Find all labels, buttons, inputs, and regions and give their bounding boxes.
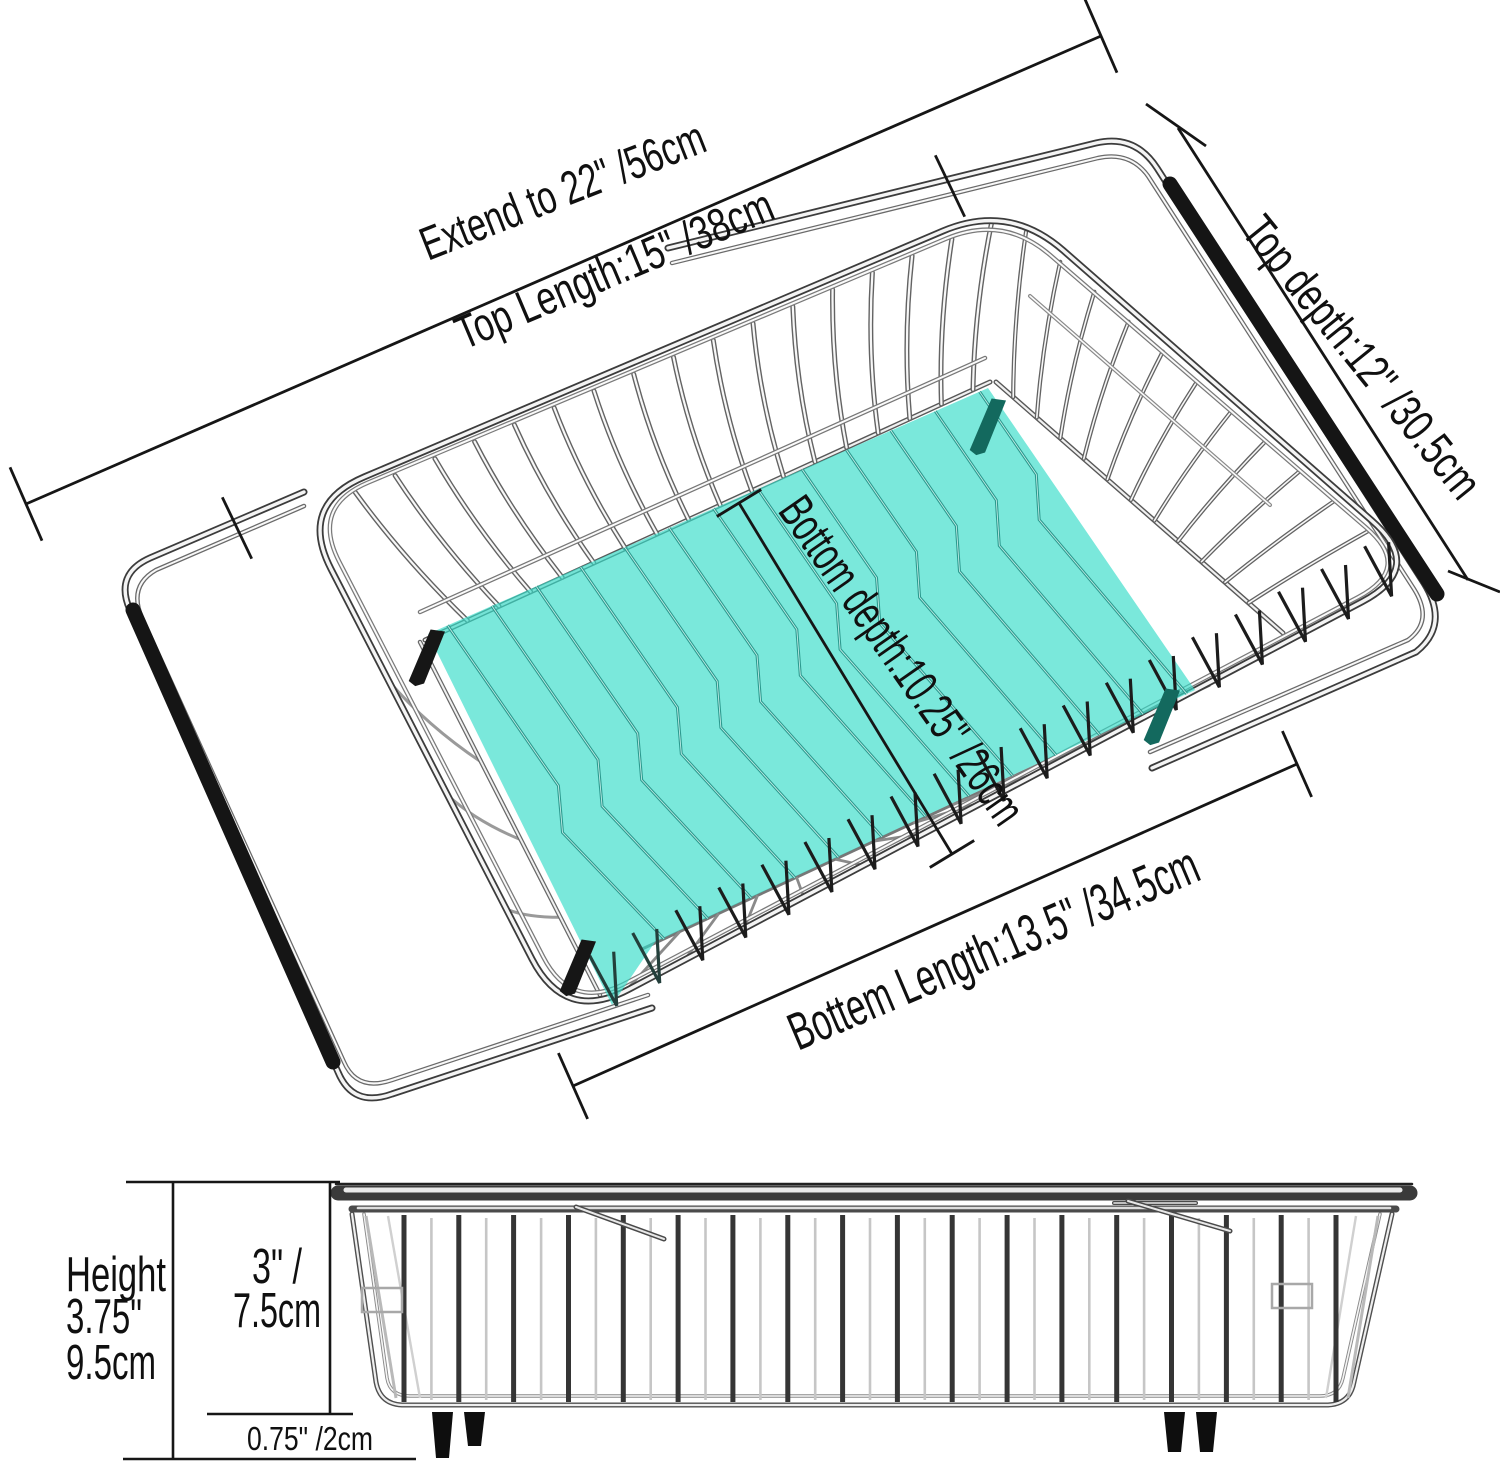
svg-text:7.5cm: 7.5cm bbox=[233, 1284, 321, 1338]
svg-text:0.75" /2cm: 0.75" /2cm bbox=[247, 1420, 373, 1457]
svg-text:9.5cm: 9.5cm bbox=[66, 1336, 156, 1390]
